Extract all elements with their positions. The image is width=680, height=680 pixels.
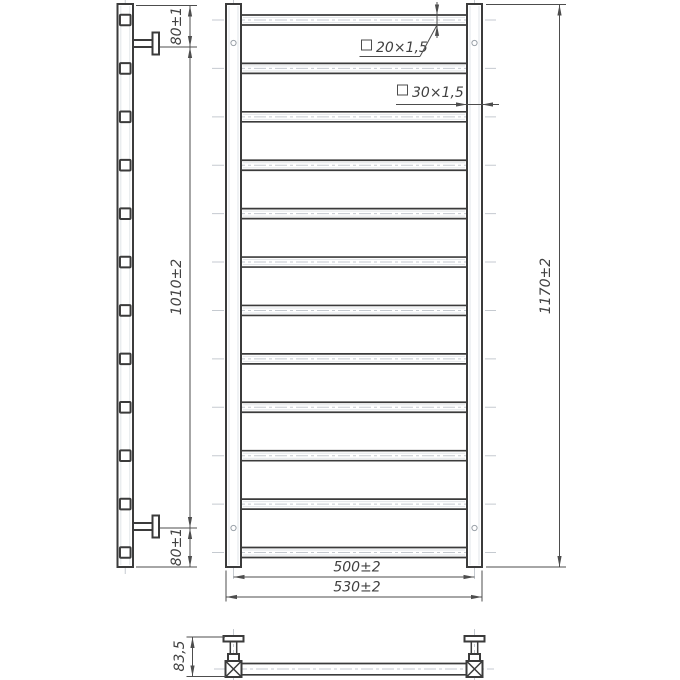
front-rung [212, 63, 496, 73]
dimension-arrow [557, 556, 561, 567]
bracket-stem [133, 523, 154, 530]
side-rung-end [120, 257, 131, 268]
dim-label-overall-width: 530±2 [333, 580, 380, 596]
mounting-hole [472, 525, 477, 530]
side-rung-end [120, 63, 131, 74]
side-rail-profile [118, 4, 134, 567]
dimension-arrow [188, 47, 192, 58]
front-rung [212, 209, 496, 219]
side-rung-end [120, 499, 131, 510]
dimension-arrow [482, 102, 493, 106]
bottom-bracket-right [465, 636, 485, 662]
mounting-hole [231, 40, 236, 45]
dim-label-rail-axis-width: 500±2 [333, 560, 380, 576]
dimension-83-5: 83,5 [172, 637, 226, 677]
dim-label-overall-height: 1170±2 [538, 258, 554, 314]
dimension-500: 500±2 [234, 560, 475, 580]
dimension-1170: 1170±2 [486, 5, 566, 568]
side-rung-end [120, 112, 131, 123]
side-view [118, 0, 160, 574]
callout-label-rung-tube: 20×1,5 [376, 40, 428, 56]
bottom-view [214, 629, 494, 680]
front-rung [212, 305, 496, 315]
dim-label-bottom-offset: 80±1 [169, 528, 185, 566]
front-rung [212, 402, 496, 412]
dimension-arrow [190, 637, 194, 648]
dimension-arrow [456, 102, 467, 106]
dimension-arrow [471, 595, 482, 599]
dim-label-bracket-spacing: 1010±2 [169, 259, 185, 315]
dim-label-wall-depth: 83,5 [172, 640, 188, 671]
front-rung [212, 257, 496, 267]
bracket-flange [153, 516, 160, 538]
callout-rail-tube: 30×1,5 [396, 85, 499, 107]
dimension-arrow [226, 595, 237, 599]
dim-label-top-offset: 80±1 [169, 7, 185, 45]
front-rung [212, 160, 496, 170]
dimension-arrow [188, 6, 192, 17]
side-rung-end [120, 450, 131, 461]
front-rung [212, 15, 496, 25]
callout-label-rail-tube: 30×1,5 [412, 85, 464, 101]
side-rung-end [120, 208, 131, 219]
dimension-arrow [435, 5, 439, 16]
dimension-arrow [464, 575, 475, 579]
wall-bracket-top [133, 33, 159, 55]
side-rung-end [120, 402, 131, 413]
front-rung [212, 499, 496, 509]
side-rung-end [120, 160, 131, 171]
callout-rung-tube: 20×1,5 [360, 2, 440, 57]
dimension-arrow [188, 36, 192, 47]
dimension-arrow [557, 5, 561, 16]
dimension-arrow [188, 517, 192, 528]
front-rung [212, 112, 496, 122]
rail-section-left [226, 661, 242, 677]
dimension-arrow [188, 556, 192, 567]
front-rung [212, 451, 496, 461]
square-tube-icon [362, 40, 372, 50]
dimension-arrow [234, 575, 245, 579]
wall-bracket-bottom [133, 516, 159, 538]
dimension-arrow [190, 666, 194, 677]
bracket-flange [224, 636, 244, 642]
bracket-stem [133, 40, 154, 47]
front-rung [212, 354, 496, 364]
rail-section-right [467, 661, 483, 677]
bottom-bracket-left [224, 636, 244, 662]
dimension-arrow [188, 528, 192, 539]
front-left-rail [226, 4, 241, 567]
technical-drawing-canvas: 80±1 1010±2 80±1 1170±2 500±2 530±2 [0, 0, 680, 680]
bracket-flange [153, 33, 160, 55]
mounting-hole [472, 40, 477, 45]
front-rung [212, 548, 496, 558]
dimension-80-bottom: 80±1 [136, 528, 197, 567]
drawing-page: 80±1 1010±2 80±1 1170±2 500±2 530±2 [0, 0, 680, 680]
dimension-1010: 1010±2 [169, 47, 192, 528]
front-right-rail [467, 4, 482, 567]
dimension-80-top: 80±1 [136, 6, 197, 568]
side-rung-end [120, 354, 131, 365]
side-rung-end [120, 15, 131, 26]
side-rung-end [120, 305, 131, 316]
side-rung-end [120, 547, 131, 558]
square-tube-icon [398, 85, 408, 95]
mounting-hole [231, 525, 236, 530]
bracket-flange [465, 636, 485, 642]
